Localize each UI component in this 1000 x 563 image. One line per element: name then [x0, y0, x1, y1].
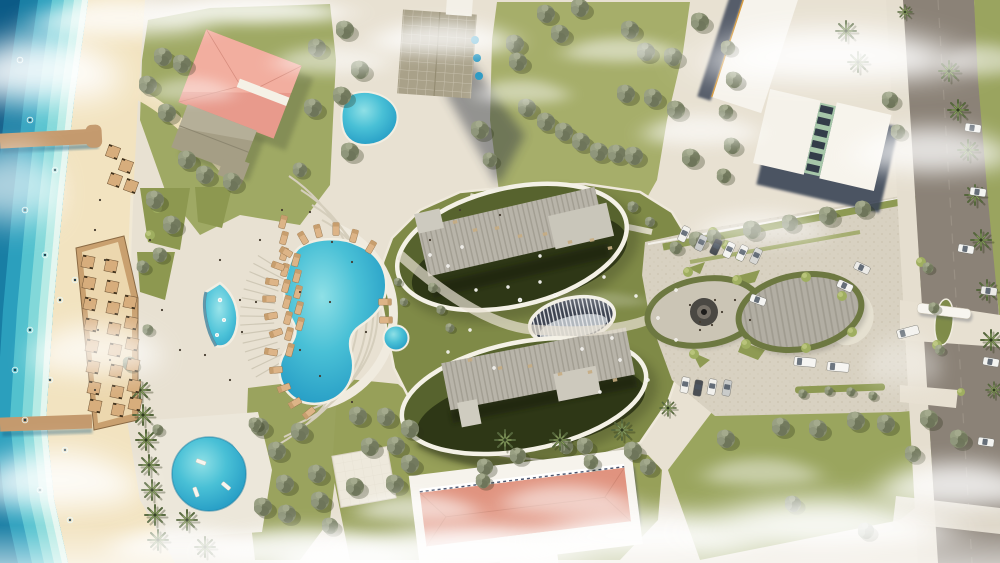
speck — [699, 321, 701, 323]
speck — [689, 304, 691, 306]
flower — [646, 378, 649, 381]
speck — [734, 299, 736, 301]
aerial-render-canvas — [0, 0, 1000, 563]
speck — [149, 239, 151, 241]
flower — [674, 288, 677, 291]
flower — [674, 338, 677, 341]
speck — [319, 375, 321, 377]
speck — [281, 209, 283, 211]
speck — [299, 349, 301, 351]
speck — [259, 239, 261, 241]
speck — [241, 331, 243, 333]
speck — [94, 389, 96, 391]
flower — [602, 275, 605, 278]
flower — [518, 298, 522, 302]
speck — [721, 311, 723, 313]
flower — [446, 264, 449, 267]
site-plan-rendering — [0, 0, 1000, 563]
speck — [329, 301, 331, 303]
speck — [204, 354, 206, 356]
umbrella — [105, 280, 119, 294]
speck — [429, 239, 431, 241]
flower — [598, 390, 601, 393]
umbrella — [111, 403, 125, 417]
flower — [580, 347, 583, 350]
flower — [222, 318, 226, 322]
speck — [161, 309, 163, 311]
speck — [104, 259, 106, 261]
flower — [538, 254, 541, 257]
cloud — [159, 0, 346, 23]
flower — [553, 293, 556, 296]
speck — [459, 209, 461, 211]
speck — [351, 401, 353, 403]
flower — [460, 245, 463, 248]
round-spa-pool — [384, 326, 409, 351]
speck — [749, 319, 751, 321]
umbrella — [128, 397, 142, 411]
flower — [618, 358, 621, 361]
bush — [837, 291, 847, 301]
speck — [229, 379, 231, 381]
umbrella — [106, 301, 120, 315]
speck — [255, 301, 257, 303]
umbrella — [127, 379, 141, 393]
umbrella — [81, 255, 95, 269]
lounger — [269, 366, 283, 374]
flower — [610, 336, 613, 339]
bush — [801, 343, 811, 353]
flower — [656, 316, 659, 319]
lower-boardwalk — [0, 414, 92, 436]
bush — [957, 388, 965, 396]
speck — [89, 299, 91, 301]
speck — [309, 211, 311, 213]
umbrella — [88, 399, 102, 413]
flower — [474, 288, 477, 291]
speck — [699, 329, 701, 331]
flower — [492, 366, 495, 369]
bottom-haze — [0, 525, 1000, 563]
lounger — [263, 296, 276, 302]
flower — [446, 350, 449, 353]
umbrella — [82, 276, 96, 290]
umbrella — [104, 259, 118, 273]
speck — [365, 331, 367, 333]
flower — [428, 253, 431, 256]
speck — [99, 199, 101, 201]
bush — [145, 230, 155, 240]
speck — [179, 349, 181, 351]
lounger — [379, 299, 392, 305]
speck — [239, 299, 241, 301]
bush — [689, 349, 699, 359]
flower — [538, 280, 541, 283]
flower — [215, 333, 219, 337]
lounger — [333, 223, 339, 236]
bush — [801, 272, 811, 282]
bush — [732, 275, 742, 285]
bush — [847, 327, 857, 337]
van — [827, 362, 850, 373]
speck — [499, 214, 501, 216]
lounger — [380, 317, 393, 323]
speck — [351, 261, 353, 263]
bush — [741, 339, 751, 349]
speck — [711, 324, 713, 326]
umbrella — [87, 381, 101, 395]
umbrella — [110, 385, 124, 399]
umbrella — [124, 316, 138, 330]
speck — [714, 299, 716, 301]
flower — [468, 328, 471, 331]
flower — [506, 285, 509, 288]
speck — [94, 229, 96, 231]
speck — [331, 241, 333, 243]
umbrella — [123, 295, 137, 309]
speck — [299, 291, 301, 293]
van — [794, 357, 817, 368]
speck — [219, 259, 221, 261]
bush — [683, 267, 693, 277]
flower — [218, 298, 222, 302]
